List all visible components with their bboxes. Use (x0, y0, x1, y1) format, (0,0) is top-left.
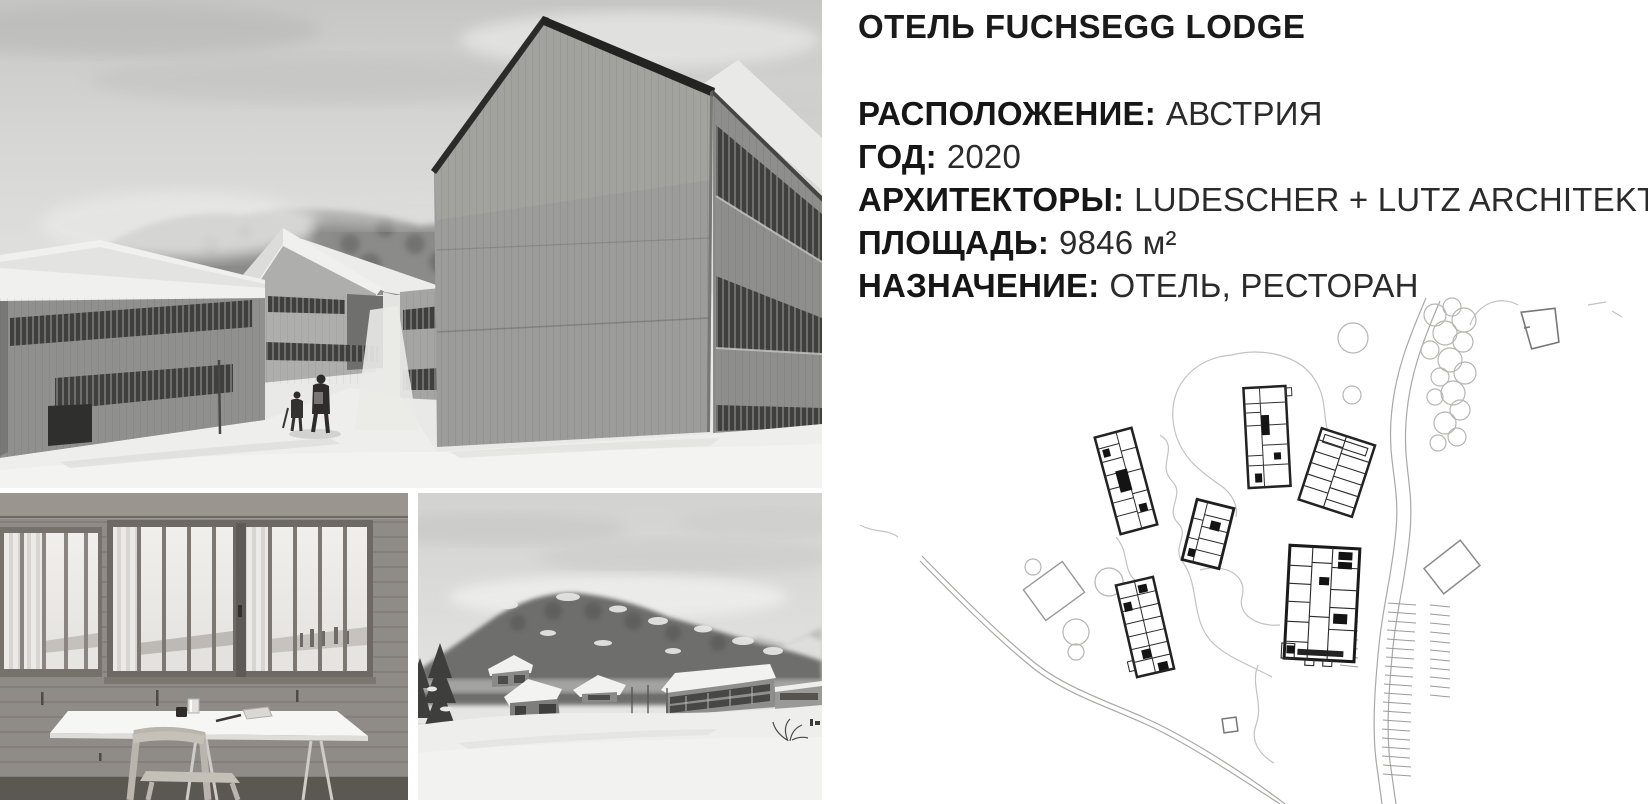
window-handle (238, 605, 242, 617)
plan-building-d (1182, 499, 1234, 568)
snow-field (418, 705, 822, 800)
interior-photo-graphic (0, 493, 408, 800)
detail-architects: АРХИТЕКТОРЫ:LUDESCHER + LUTZ ARCHITEKTEN (858, 178, 1648, 221)
landscape-photo (418, 493, 822, 800)
plan-building-c (1095, 428, 1158, 534)
detail-location: РАСПОЛОЖЕНИЕ:АВСТРИЯ (858, 92, 1648, 135)
detail-year: ГОД:2020 (858, 135, 1648, 178)
lamp-post (219, 360, 220, 434)
parking-col-c (1430, 605, 1450, 697)
site-plan-graphic (860, 285, 1648, 804)
plan-building-e (1110, 577, 1174, 678)
terrain-contours (860, 301, 1622, 763)
project-details: РАСПОЛОЖЕНИЕ:АВСТРИЯ ГОД:2020 АРХИТЕКТОР… (858, 92, 1648, 307)
interior-photo (0, 493, 408, 800)
window-band (0, 520, 376, 684)
page-title: ОТЕЛЬ FUCHSEGG LODGE (858, 8, 1305, 46)
roads (920, 298, 1440, 804)
plan-building-b (1299, 428, 1375, 517)
landscape-photo-graphic (418, 493, 822, 800)
plan-outbuildings (1023, 306, 1561, 733)
detail-area: ПЛОЩАДЬ:9846 м² (858, 221, 1648, 264)
main-photo (0, 0, 822, 488)
site-plan (860, 285, 1648, 804)
left-building (0, 240, 265, 458)
plan-building-a (1243, 386, 1296, 488)
main-photo-graphic (0, 0, 822, 488)
plan-building-f (1281, 545, 1360, 668)
slide-page: ОТЕЛЬ FUCHSEGG LODGE РАСПОЛОЖЕНИЕ:АВСТРИ… (0, 0, 1648, 804)
parking-col-b (1382, 603, 1416, 776)
